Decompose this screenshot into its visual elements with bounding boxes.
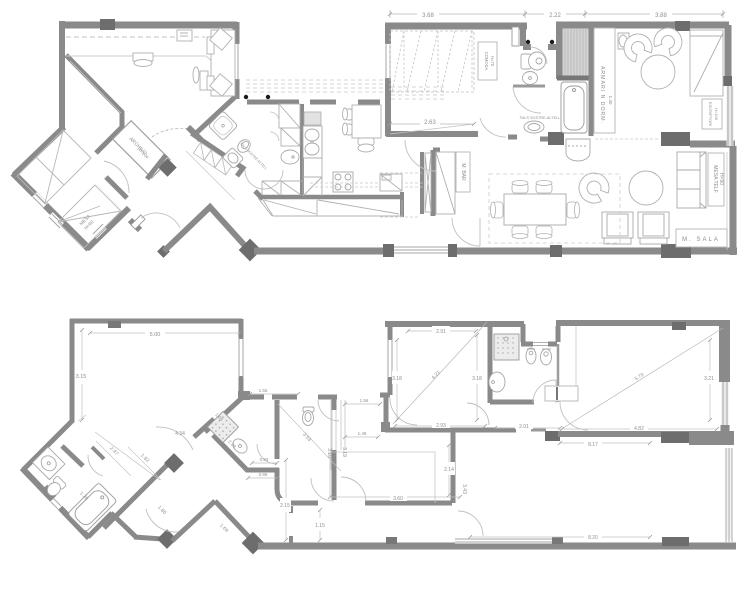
svg-text:ESCRIPTORI: ESCRIPTORI — [708, 102, 713, 126]
svg-text:2.01: 2.01 — [519, 424, 529, 430]
svg-text:3.68: 3.68 — [422, 13, 434, 19]
svg-text:3.10: 3.10 — [326, 448, 332, 458]
svg-text:FALS SOSTRE-ALTELL: FALS SOSTRE-ALTELL — [520, 116, 561, 120]
svg-text:1.55: 1.55 — [259, 388, 268, 393]
svg-text:8.17: 8.17 — [588, 442, 598, 448]
svg-text:0.83: 0.83 — [260, 457, 269, 462]
svg-text:2.63: 2.63 — [424, 120, 436, 126]
svg-text:5.00: 5.00 — [150, 332, 161, 338]
svg-text:H=70: H=70 — [490, 56, 495, 67]
svg-text:8.20: 8.20 — [588, 535, 598, 541]
svg-text:3.60: 3.60 — [393, 496, 403, 502]
svg-text:4.34: 4.34 — [175, 431, 185, 437]
svg-text:3.18: 3.18 — [472, 376, 482, 382]
svg-text:0.86: 0.86 — [259, 472, 268, 477]
svg-text:2.14: 2.14 — [444, 467, 454, 473]
svg-text:3.88: 3.88 — [655, 13, 667, 19]
svg-text:3.18: 3.18 — [392, 376, 402, 382]
svg-text:3.43: 3.43 — [461, 484, 467, 494]
svg-text:3.21: 3.21 — [704, 376, 714, 382]
svg-text:M. BAR: M. BAR — [460, 163, 466, 181]
svg-text:1.49: 1.49 — [358, 431, 367, 436]
svg-text:COMODA: COMODA — [484, 52, 489, 71]
svg-text:2.15: 2.15 — [280, 503, 290, 509]
svg-text:2.22: 2.22 — [549, 13, 561, 19]
svg-text:1.40: 1.40 — [608, 96, 613, 105]
svg-text:2.91: 2.91 — [436, 329, 446, 335]
svg-text:4.82: 4.82 — [634, 426, 644, 432]
svg-text:H=106: H=106 — [714, 108, 719, 121]
svg-text:2.93: 2.93 — [436, 423, 446, 429]
svg-text:1.56: 1.56 — [360, 398, 369, 403]
svg-text:MESA TELF: MESA TELF — [712, 165, 718, 192]
svg-text:3.15: 3.15 — [76, 374, 87, 380]
svg-text:M. SALA: M. SALA — [682, 237, 720, 243]
svg-text:H=90: H=90 — [718, 173, 724, 185]
svg-text:1.15: 1.15 — [315, 523, 325, 529]
svg-text:ARMARI N DORM.: ARMARI N DORM. — [599, 66, 605, 124]
